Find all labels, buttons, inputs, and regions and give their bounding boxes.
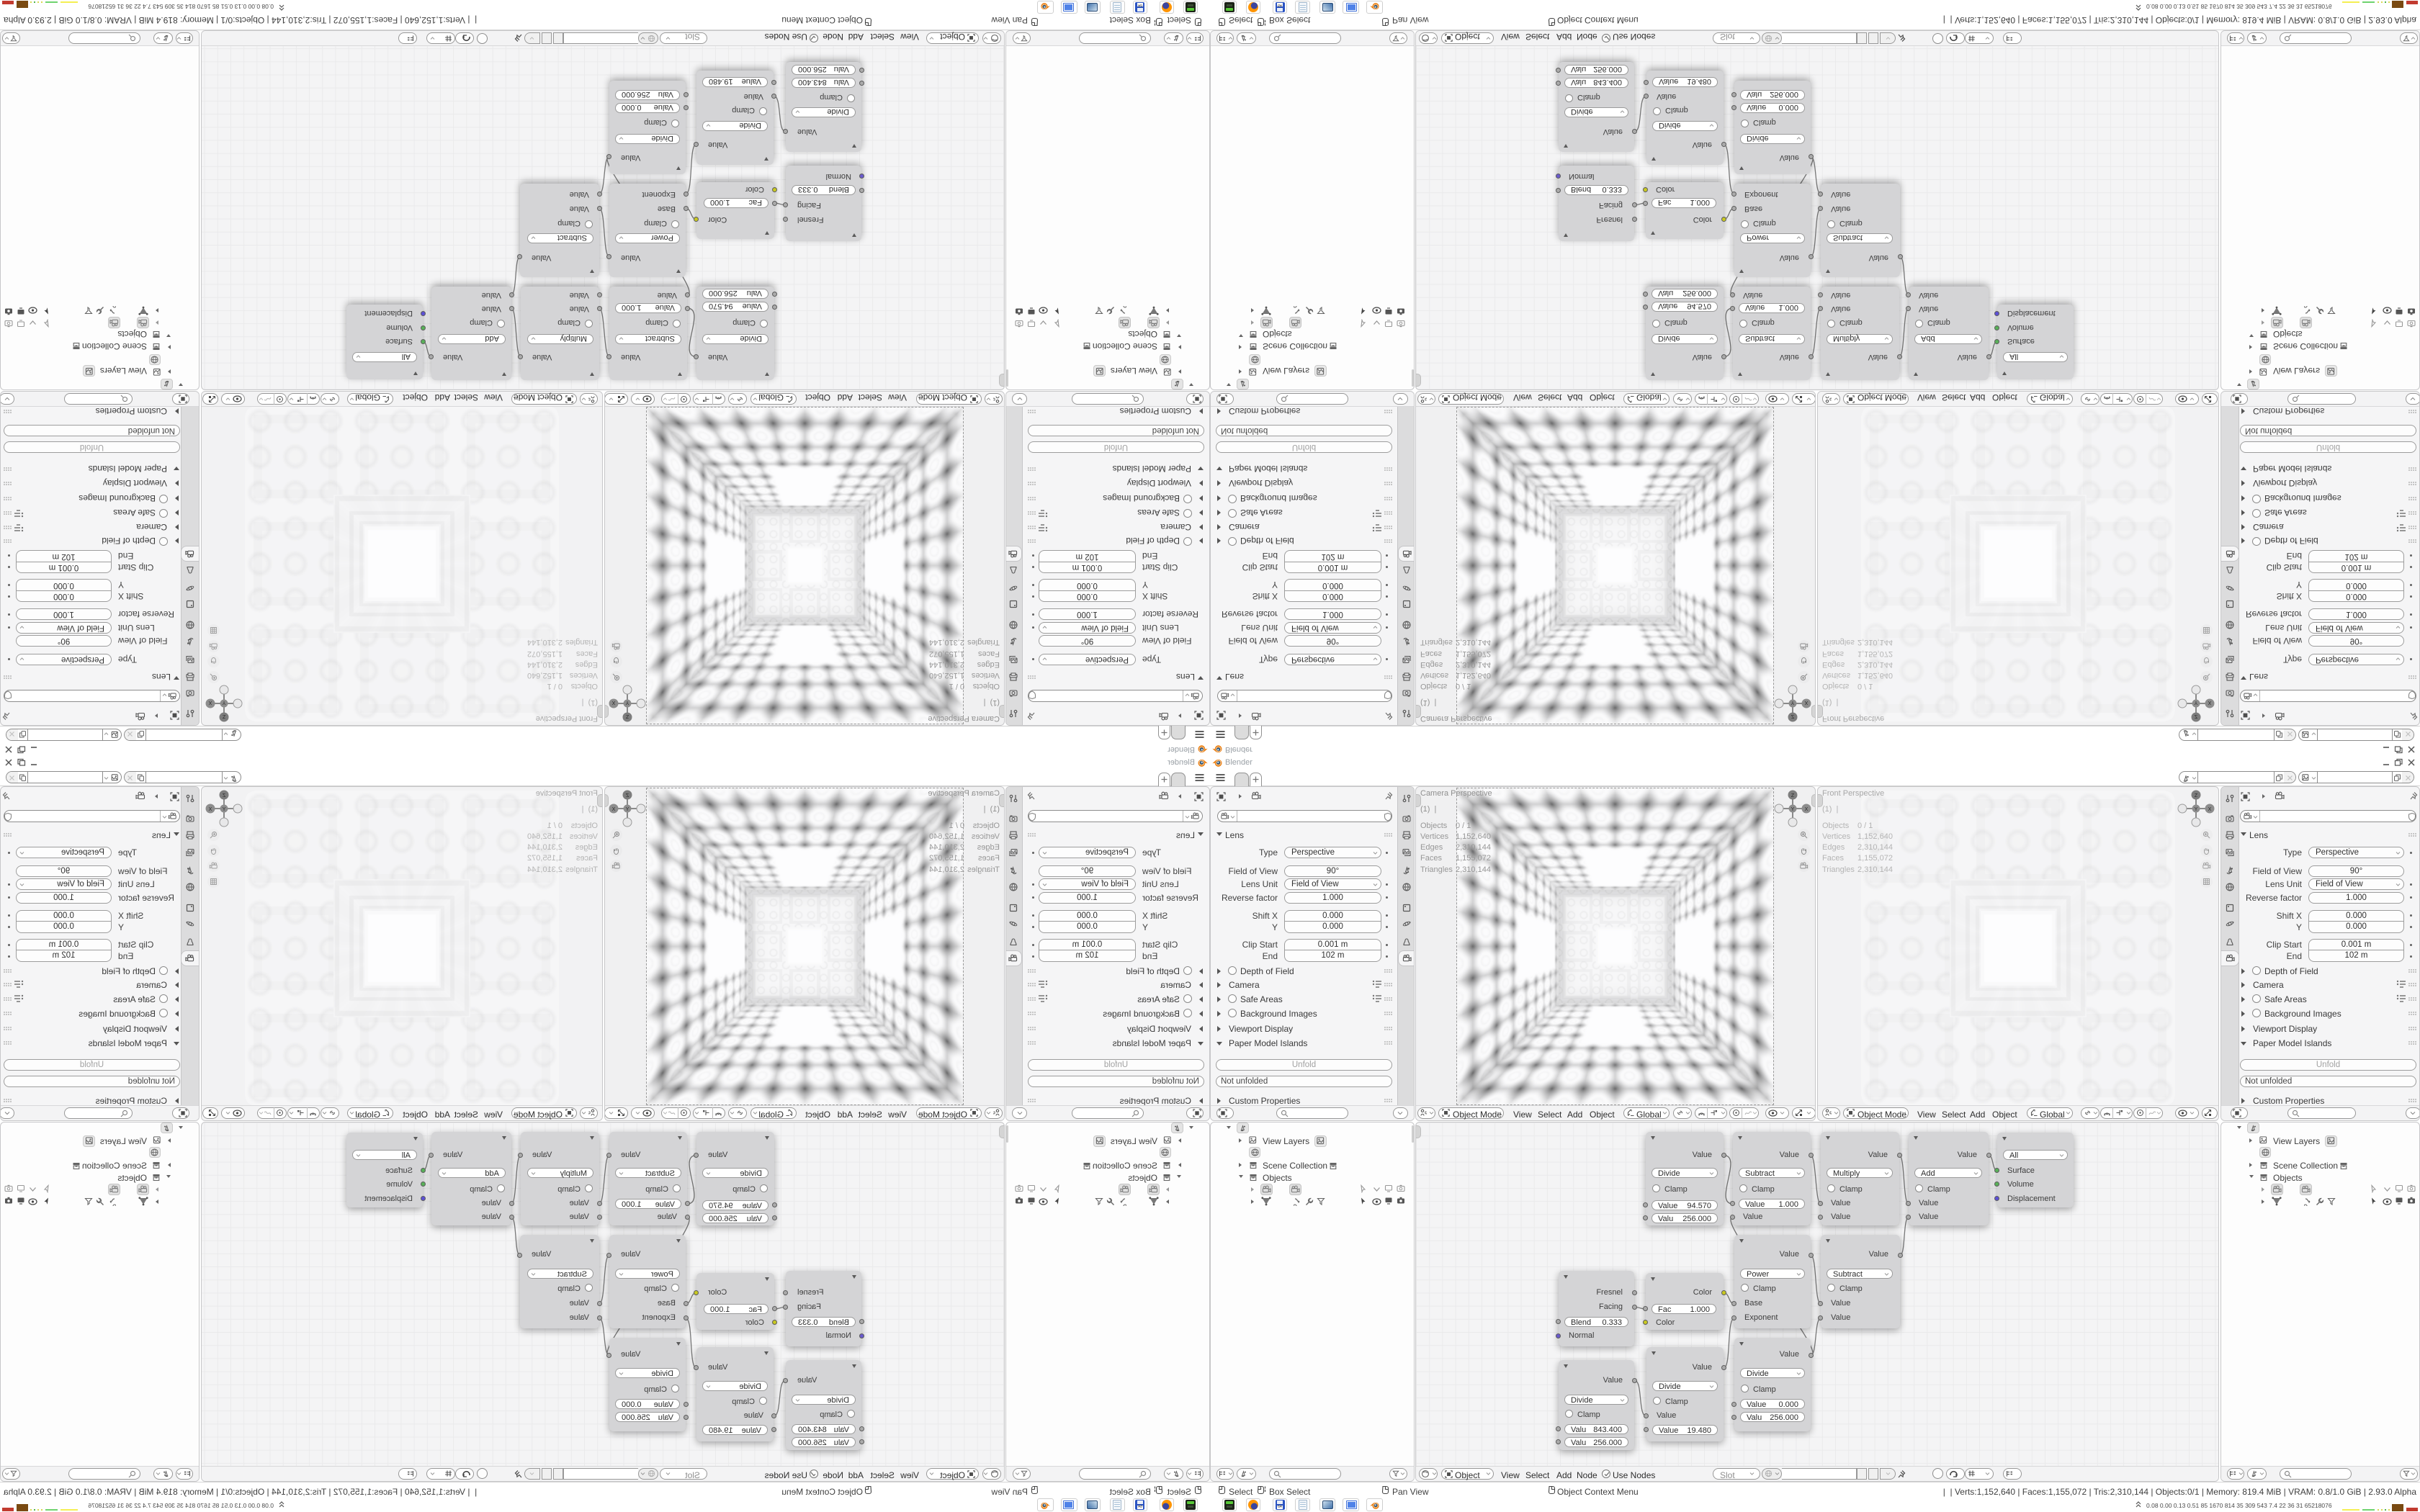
- svg-text:X: X: [611, 807, 615, 812]
- svg-text:X: X: [2208, 807, 2212, 812]
- svg-text:X: X: [1805, 807, 1809, 812]
- svg-text:Y: Y: [625, 700, 629, 705]
- svg-text:X: X: [208, 807, 212, 812]
- svg-text:Z: Z: [625, 714, 629, 719]
- svg-text:Y: Y: [2195, 700, 2198, 705]
- svg-text:Y: Y: [625, 807, 629, 812]
- svg-text:Y: Y: [2195, 807, 2198, 812]
- svg-text:X: X: [2208, 700, 2212, 705]
- svg-text:Z: Z: [222, 714, 225, 719]
- svg-text:Y: Y: [222, 700, 225, 705]
- svg-text:X: X: [611, 700, 615, 705]
- svg-text:Y: Y: [222, 807, 225, 812]
- svg-text:Z: Z: [625, 793, 629, 798]
- svg-text:Z: Z: [222, 793, 225, 798]
- svg-text:X: X: [1805, 700, 1809, 705]
- svg-text:X: X: [208, 700, 212, 705]
- svg-text:Z: Z: [1791, 714, 1795, 719]
- svg-text:Z: Z: [2195, 793, 2198, 798]
- svg-text:Y: Y: [1791, 807, 1795, 812]
- svg-text:Z: Z: [2195, 714, 2198, 719]
- svg-text:Y: Y: [1791, 700, 1795, 705]
- svg-text:Z: Z: [1791, 793, 1795, 798]
